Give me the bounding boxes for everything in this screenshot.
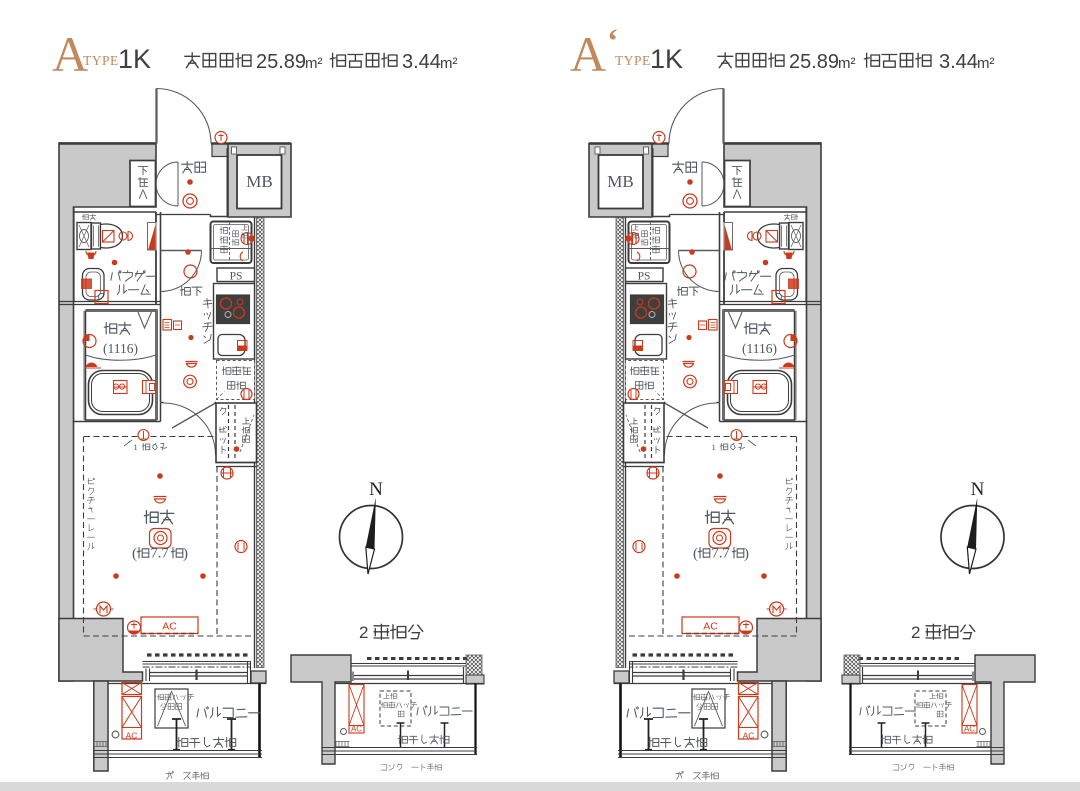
svg-text:m²: m² [838, 55, 856, 72]
svg-text:(1116): (1116) [742, 341, 777, 356]
svg-text:7.7: 7.7 [151, 546, 169, 562]
svg-text:N: N [369, 479, 383, 500]
svg-text:PS: PS [230, 271, 243, 283]
svg-text:1: 1 [712, 442, 716, 452]
svg-text:m²: m² [977, 55, 995, 72]
svg-text:AC: AC [964, 725, 975, 734]
svg-text:A: A [570, 26, 606, 82]
svg-text:PS: PS [638, 271, 651, 283]
svg-text:25.89: 25.89 [789, 51, 839, 73]
svg-text:(: ( [693, 546, 698, 562]
svg-text:AC: AC [351, 725, 362, 734]
svg-text:1K: 1K [118, 44, 151, 74]
svg-text:AC: AC [743, 731, 755, 741]
svg-text:): ) [183, 546, 188, 562]
svg-text:AC: AC [126, 731, 138, 741]
svg-text:(1116): (1116) [103, 341, 138, 356]
svg-text:TYPE: TYPE [615, 53, 651, 68]
svg-text:3.44: 3.44 [402, 51, 441, 73]
svg-text:AC: AC [162, 621, 177, 633]
svg-text:m²: m² [305, 55, 323, 72]
svg-text:3.44: 3.44 [939, 51, 978, 73]
svg-text:TYPE: TYPE [83, 53, 119, 68]
svg-text:2: 2 [911, 623, 920, 642]
svg-text:1K: 1K [650, 44, 683, 74]
svg-text:): ) [744, 546, 749, 562]
svg-text:(: ( [132, 546, 137, 562]
svg-text:7.7: 7.7 [712, 546, 730, 562]
svg-text:AC: AC [703, 621, 718, 633]
svg-text:25.89: 25.89 [256, 51, 306, 73]
svg-text:MB: MB [246, 172, 272, 191]
svg-text:1: 1 [134, 442, 138, 452]
svg-text:MB: MB [607, 172, 633, 191]
svg-text:2: 2 [359, 623, 368, 642]
svg-text:m²: m² [440, 55, 458, 72]
